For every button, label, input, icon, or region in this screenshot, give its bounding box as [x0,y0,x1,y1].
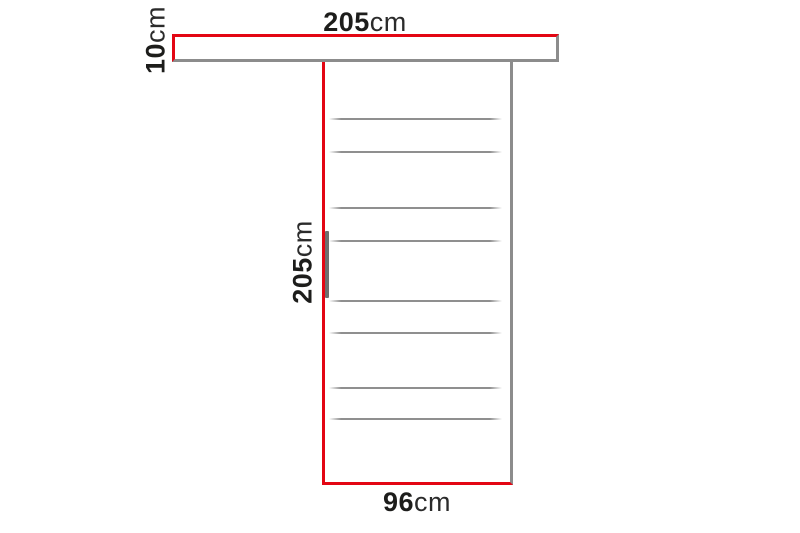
panel-groove-line [329,332,502,334]
panel-groove-line [329,240,502,242]
panel-groove-line [329,418,502,420]
door-width-value: 96 [383,487,414,517]
dimension-label-door-height: 205cm [290,220,317,304]
rail-height-unit: cm [141,6,171,43]
door-width-unit: cm [414,487,451,517]
panel-groove-line [329,151,502,153]
panel-groove-line [329,300,502,302]
panel-groove-line [329,118,502,120]
door-handle [325,231,329,298]
dimension-label-rail-width: 205cm [323,9,407,36]
rail-width-unit: cm [370,7,407,37]
dimension-diagram: 205cm 10cm 205cm 96cm [0,0,800,533]
door-height-value: 205 [288,257,318,304]
door-height-unit: cm [288,220,318,257]
dimension-label-rail-height: 10cm [143,6,170,74]
top-rail [172,34,559,62]
panel-groove-line [329,207,502,209]
door-panel [322,62,513,485]
panel-groove-line [329,387,502,389]
rail-width-value: 205 [323,7,370,37]
rail-height-value: 10 [141,43,171,74]
dimension-label-door-width: 96cm [383,489,451,516]
